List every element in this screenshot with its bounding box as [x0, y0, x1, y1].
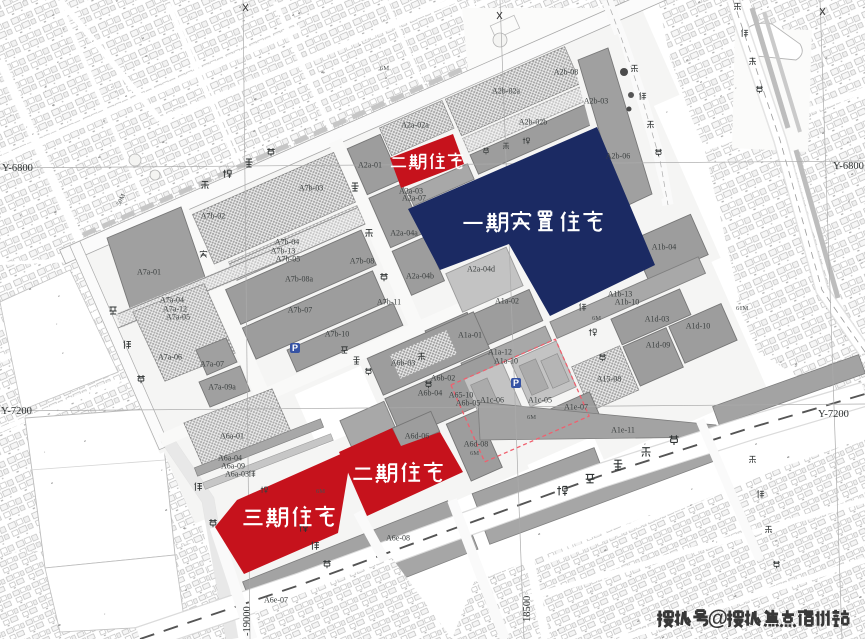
- svg-text:6M: 6M: [527, 414, 536, 421]
- svg-text:A1a-02: A1a-02: [495, 297, 519, 306]
- svg-text:A7b-07: A7b-07: [288, 306, 312, 315]
- svg-text:A6a-01: A6a-01: [220, 432, 244, 441]
- svg-text:A2a-01: A2a-01: [358, 161, 382, 170]
- svg-text:Y-7200: Y-7200: [1, 406, 32, 417]
- svg-text:A1d-03: A1d-03: [645, 315, 669, 324]
- svg-text:6M: 6M: [316, 488, 325, 495]
- svg-text:@: @: [708, 607, 728, 630]
- svg-text:Y-6800: Y-6800: [833, 161, 864, 172]
- svg-text:A2b-06: A2b-06: [606, 152, 630, 161]
- svg-text:A1d-09: A1d-09: [646, 341, 670, 350]
- svg-text:A2a-04b: A2a-04b: [406, 272, 434, 281]
- svg-text:Y-6800: Y-6800: [2, 163, 33, 174]
- svg-text:A6a-03: A6a-03: [225, 470, 249, 479]
- svg-text:A7b-05: A7b-05: [276, 255, 300, 264]
- svg-text:A2b-02a: A2b-02a: [492, 87, 520, 96]
- svg-text:A2a-04d: A2a-04d: [467, 265, 495, 274]
- svg-text:A2a-04a: A2a-04a: [390, 229, 418, 238]
- svg-text:A7a-01: A7a-01: [137, 268, 161, 277]
- svg-text:6M: 6M: [380, 65, 389, 72]
- svg-text:A2a-02a: A2a-02a: [401, 121, 429, 130]
- svg-text:A7b-08: A7b-08: [350, 257, 374, 266]
- svg-text:A1e-07: A1e-07: [564, 403, 588, 412]
- svg-text:A7b-02: A7b-02: [201, 212, 225, 221]
- svg-text:A15-08: A15-08: [597, 375, 621, 384]
- svg-text:-19000: -19000: [242, 606, 253, 636]
- svg-text:A7a-09a: A7a-09a: [208, 383, 236, 392]
- svg-text:A6b-02: A6b-02: [431, 374, 455, 383]
- svg-text:A7a-05: A7a-05: [166, 313, 190, 322]
- svg-text:P: P: [513, 378, 519, 388]
- svg-text:A1e-11: A1e-11: [611, 426, 635, 435]
- svg-text:A7b-04: A7b-04: [275, 238, 299, 247]
- svg-text:A1c-06: A1c-06: [480, 396, 504, 405]
- svg-text:A6b-04: A6b-04: [418, 389, 442, 398]
- svg-text:A2b-03: A2b-03: [584, 97, 608, 106]
- svg-text:61M: 61M: [736, 305, 749, 312]
- svg-text:P: P: [292, 343, 298, 353]
- svg-text:A6d-06: A6d-06: [405, 432, 429, 441]
- svg-text:A6d-08: A6d-08: [464, 440, 488, 449]
- svg-text:A1d-10: A1d-10: [686, 322, 710, 331]
- svg-text:18500: 18500: [522, 596, 533, 622]
- svg-text:6M: 6M: [470, 450, 479, 457]
- svg-text:A1b-10: A1b-10: [615, 298, 639, 307]
- svg-text:A1a-12: A1a-12: [488, 348, 512, 357]
- svg-text:A2b-08: A2b-08: [554, 68, 578, 77]
- svg-text:A6e-07: A6e-07: [264, 596, 288, 605]
- svg-text:A7a-06: A7a-06: [158, 353, 182, 362]
- svg-text:A7b-03: A7b-03: [299, 184, 323, 193]
- svg-text:A7a-04: A7a-04: [160, 296, 184, 305]
- svg-text:A6b-03: A6b-03: [391, 359, 415, 368]
- svg-text:A1b-04: A1b-04: [652, 243, 676, 252]
- svg-text:A7b-11: A7b-11: [377, 298, 401, 307]
- svg-text:A7b-08a: A7b-08a: [285, 275, 313, 284]
- svg-text:A6e-08: A6e-08: [386, 534, 410, 543]
- svg-text:A1c-05: A1c-05: [528, 396, 552, 405]
- svg-text:6M: 6M: [592, 315, 601, 322]
- svg-text:A6b-05: A6b-05: [456, 399, 480, 408]
- svg-text:A1a-10: A1a-10: [494, 357, 518, 366]
- svg-text:A7a-07: A7a-07: [200, 360, 224, 369]
- svg-text:A7b-10: A7b-10: [325, 330, 349, 339]
- svg-text:A2b-02b: A2b-02b: [519, 118, 547, 127]
- svg-text:Y-7200: Y-7200: [818, 409, 849, 420]
- svg-text:A2a-07: A2a-07: [402, 194, 426, 203]
- svg-text:A1a-01: A1a-01: [458, 331, 482, 340]
